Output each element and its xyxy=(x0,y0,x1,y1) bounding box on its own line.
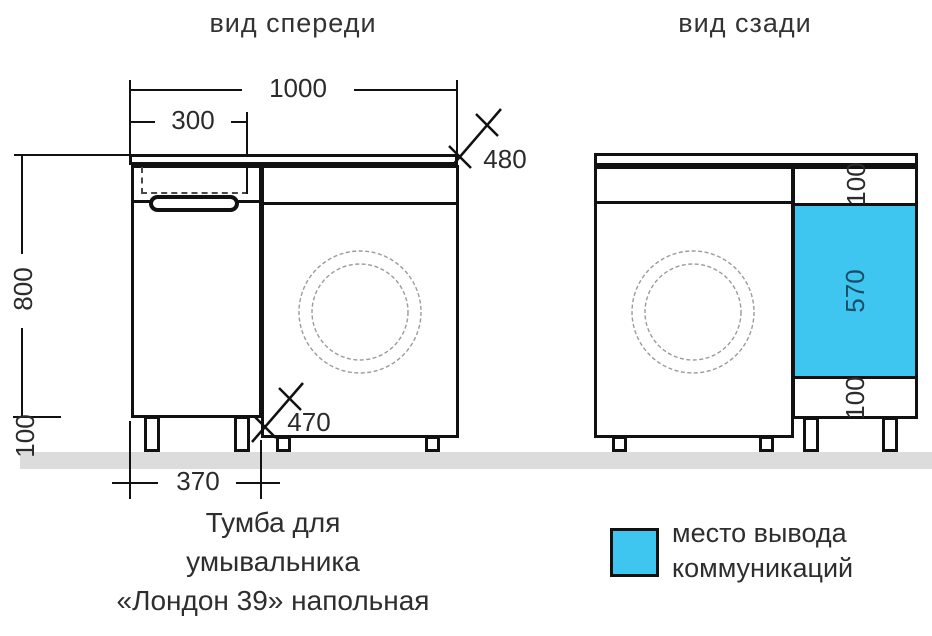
back-dim-100-bottom-label: 100 xyxy=(842,363,868,433)
product-caption-line3: «Лондон 39» напольная xyxy=(45,581,501,620)
front-washer-top-line xyxy=(261,202,459,205)
legend-label: место вывода коммуникаций xyxy=(672,516,853,586)
dim-370-label: 370 xyxy=(158,468,238,494)
back-view-title: вид сзади xyxy=(590,8,900,39)
front-door-handle xyxy=(149,195,239,212)
front-cabinet-leg-right xyxy=(234,416,250,452)
dim-370-ext-right xyxy=(260,440,262,499)
dim-300-label: 300 xyxy=(155,107,231,133)
dim-1000-ext-left xyxy=(129,80,131,155)
dim-370-line-b xyxy=(236,482,280,484)
front-countertop xyxy=(129,154,458,165)
dim-370-line-a xyxy=(112,482,158,484)
back-cabinet-leg-right xyxy=(882,417,898,452)
dim-100-leg-label: 100 xyxy=(12,401,38,471)
legend-swatch xyxy=(610,528,659,577)
front-sink-hidden-outline xyxy=(141,167,248,194)
dim-800-ext-top xyxy=(14,154,130,156)
dim-800-line-upper xyxy=(21,156,23,254)
dim-480-label: 480 xyxy=(474,146,536,172)
back-cabinet-leg-left xyxy=(803,417,819,452)
front-washer-leg-right xyxy=(425,436,440,452)
back-dim-570-label: 570 xyxy=(842,256,868,326)
back-dim-100-top-label: 100 xyxy=(843,149,869,219)
front-cabinet-leg-left xyxy=(144,416,160,452)
back-washer-leg-left xyxy=(612,436,627,452)
product-caption-line1: Тумба для xyxy=(45,503,501,542)
dim-300-ext-a xyxy=(246,112,248,155)
floor-strip xyxy=(20,452,932,469)
dim-300-ext-b xyxy=(246,167,248,194)
technical-drawing-page: 1000 300 800 100 370 470 480 100 570 100… xyxy=(0,0,932,636)
product-caption: Тумба для умывальника «Лондон 39» наполь… xyxy=(45,503,501,620)
back-washer-top-line xyxy=(594,201,794,204)
legend-label-line2: коммуникаций xyxy=(672,551,853,586)
front-washer-leg-left xyxy=(276,436,291,452)
dim-800-label: 800 xyxy=(10,254,36,324)
dim-470-label: 470 xyxy=(280,409,338,435)
front-view-title: вид спереди xyxy=(138,8,448,39)
dim-370-ext-left xyxy=(129,421,131,499)
dim-1000-label: 1000 xyxy=(242,75,354,101)
back-washer-niche xyxy=(594,166,794,438)
dim-1000-ext-right xyxy=(456,80,458,155)
product-caption-line2: умывальника xyxy=(45,542,501,581)
legend-label-line1: место вывода xyxy=(672,516,853,551)
front-washer-niche xyxy=(261,165,459,438)
back-washer-leg-right xyxy=(759,436,774,452)
